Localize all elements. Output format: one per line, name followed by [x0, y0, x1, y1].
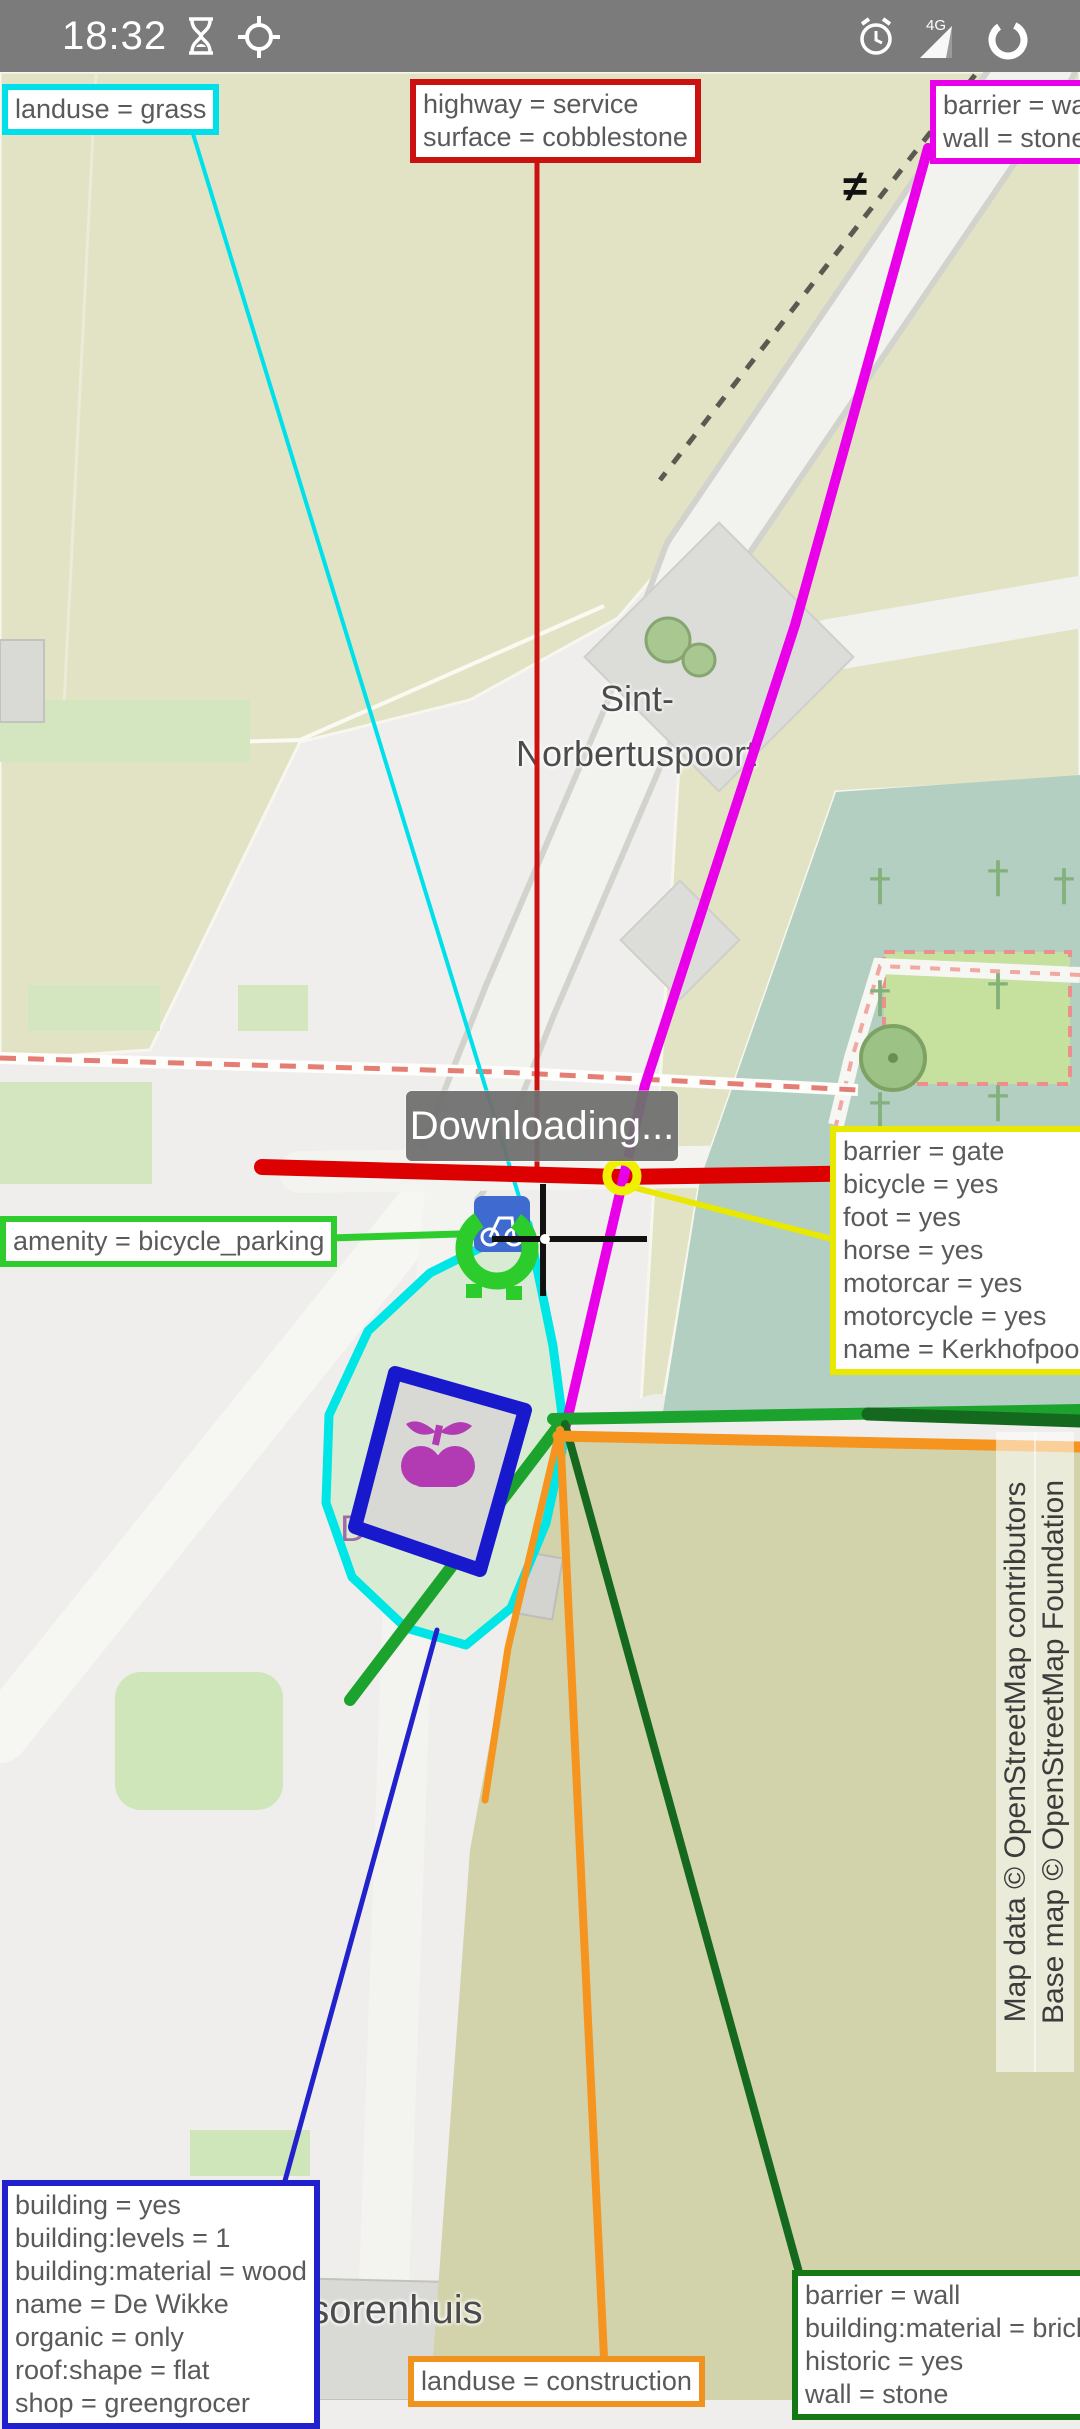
network-type-label: 4G — [926, 17, 946, 34]
hourglass-icon — [184, 16, 218, 56]
callout-landuse-construction[interactable]: landuse = construction — [408, 2356, 705, 2407]
callout-landuse-grass[interactable]: landuse = grass — [2, 84, 219, 135]
leader-construction — [560, 1430, 604, 2358]
gps-searching-icon — [238, 16, 280, 58]
status-bar: 18:32 4G — [0, 0, 1080, 72]
callout-amenity-bicycle-parking[interactable]: amenity = bicycle_parking — [0, 1216, 337, 1267]
leader-historic-wall — [565, 1424, 800, 2276]
downloading-toast: Downloading... — [406, 1091, 678, 1161]
callout-highway-service[interactable]: highway = service surface = cobblestone — [410, 79, 701, 163]
map-editor-screen: { "status_bar": { "time": "18:32", "netw… — [0, 0, 1080, 2400]
leader-gate — [628, 1186, 836, 1240]
leader-building — [283, 1630, 437, 2188]
leader-grass — [190, 124, 528, 1226]
clock: 18:32 — [62, 14, 167, 59]
data-circle-icon — [984, 16, 1032, 64]
attribution-map-data: Map data © OpenStreetMap contributors — [996, 1432, 1036, 2072]
callout-barrier-wall-bottom[interactable]: barrier = wall building:material = brick… — [792, 2270, 1080, 2420]
attribution-base-map: Base map © OpenStreetMap Foundation — [1034, 1432, 1074, 2072]
alarm-icon — [856, 16, 896, 58]
callout-barrier-wall-top[interactable]: barrier = wall wall = stone — [930, 80, 1080, 164]
signal-icon: 4G — [912, 16, 964, 60]
callout-barrier-gate[interactable]: barrier = gate bicycle = yes foot = yes … — [830, 1126, 1080, 1375]
historic-wall-line[interactable] — [868, 1414, 1080, 1421]
callout-building-de-wikke[interactable]: building = yes building:levels = 1 build… — [2, 2180, 320, 2429]
